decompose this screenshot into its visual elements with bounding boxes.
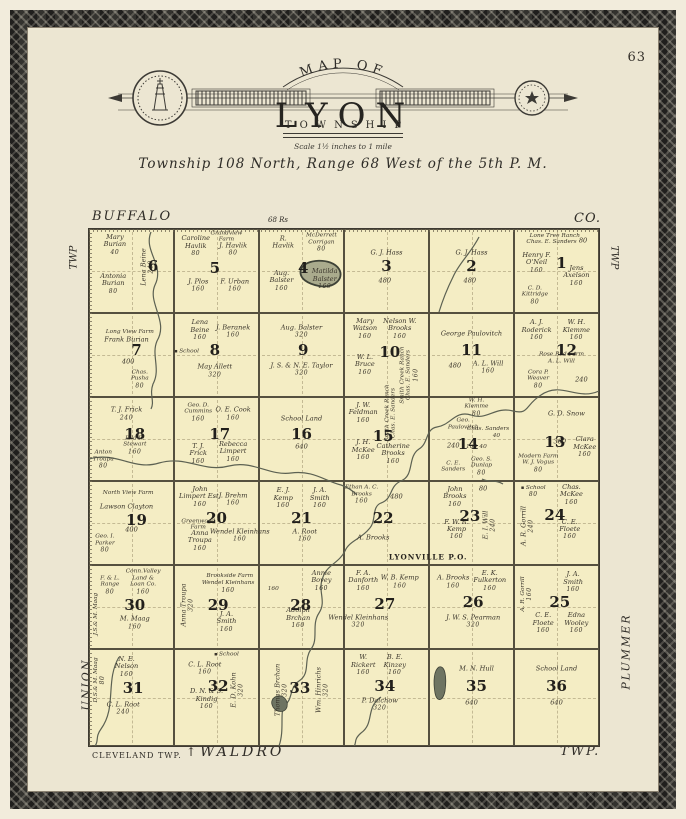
parcel-label: N. E.Nelson160 (115, 656, 138, 678)
parcel-label: 640 (295, 444, 308, 451)
parcel-label: 40 (493, 432, 500, 438)
parcel-label: LenaBeine160 (190, 319, 209, 341)
section-number: 36 (546, 677, 567, 695)
township-map: 6MaryBurian40AntoniaBurian80Lena Beine24… (88, 228, 600, 747)
parcel-label: G. J. Hass (371, 249, 403, 256)
section-number: 28 (290, 596, 311, 614)
section-cell-26: 26A. Brooks160E. K.Fulkerton160J. W. S. … (429, 565, 514, 649)
parcel-label: A. Root160 (293, 529, 318, 544)
parcel-label: JensAxelson160 (563, 265, 589, 287)
parcel-label: J. Havlik80 (219, 242, 247, 257)
section-number: 33 (289, 679, 310, 697)
section-cell-25: 25A. R. Gorrill160J. A.Smith160C. E.Floe… (514, 565, 599, 649)
parcel-label: JohnLimpert Est.160 (179, 486, 221, 508)
parcel-label: G. J. Hass (456, 249, 488, 256)
section-number: 21 (291, 509, 312, 527)
parcel-label: ClaraMcKee160 (573, 436, 596, 458)
section-number: 23 (459, 507, 480, 525)
section-cell-20: 20JohnLimpert Est.160J. Brehm160Greenwoo… (174, 481, 259, 565)
parcel-label: Wendel Kleinhans320 (328, 614, 388, 629)
parcel-label: G. D. Snow (548, 411, 585, 418)
parcel-label: Brookside Farm (206, 573, 253, 579)
parcel-label: EdnaWooley160 (564, 612, 588, 634)
section-cell-2: 2G. J. Hass480 (429, 229, 514, 313)
parcel-label: M. N. Hull (459, 665, 494, 672)
parcel-label: JohnBrooks160 (443, 486, 466, 508)
parcel-label: 160 (268, 586, 279, 592)
parcel-label: J. W. S. Pearman320 (446, 614, 500, 629)
parcel-label: J. H.McKee160 (352, 439, 375, 461)
section-number: 16 (291, 425, 312, 443)
parcel-label: D.S.& M. Maag80 (93, 658, 107, 703)
section-cell-14: 14W. H.Klemme80Geo.PaulovitchChas. Sande… (429, 397, 514, 481)
section-number: 29 (208, 596, 229, 614)
section-cell-28: 28160AnnieBovey160AdolphBrchan160 (259, 565, 344, 649)
parcel-label: Lawson Clayton (100, 503, 153, 510)
section-number: 13 (544, 433, 565, 451)
section-cell-7: 7Long View FarmFrank Burian400Chas.Pusha… (89, 313, 174, 397)
parcel-label: W. H.Klemme160 (563, 319, 590, 341)
parcel-label: Geo. D.Cummins160 (184, 402, 212, 423)
parcel-label: 480 (464, 277, 477, 284)
section-cell-21: 21E. J.Kemp160J. A.Smith160A. Root160 (259, 481, 344, 565)
survey-ticks-top (89, 229, 599, 232)
parcel-label: Frank Burian (104, 337, 149, 344)
section-cell-17: 17Geo. D.Cummins160O. E. Cook160T. J.Fri… (174, 397, 259, 481)
parcel-label: P. Dalchow320 (362, 698, 398, 713)
parcel-label: C. E.Sanders (441, 460, 465, 473)
section-cell-3: 3G. J. Hass480 (344, 229, 429, 313)
parcel-label: B. E.Kinzey160 (384, 654, 406, 676)
parcel-label: 80 (579, 237, 587, 244)
parcel-label: F. A.Danforth160 (348, 570, 378, 592)
section-cell-36: 36School Land640 (514, 649, 599, 746)
parcel-label: O. E. Cook160 (215, 407, 250, 422)
section-cell-24: 24School80Chas.McKee160A. R. Gorrill240C… (514, 481, 599, 565)
parcel-label: Henry F.O'Neil160 (522, 252, 551, 274)
parcel-label: Aug.Balster160 (270, 270, 294, 292)
section-cell-4: 4R.HavlikMcDerrettCorrigan80Aug.Balster1… (259, 229, 344, 313)
parcel-label: E. K.Fulkerton160 (473, 570, 506, 592)
parcel-label: E. D. Kohn320 (231, 672, 246, 707)
section-number: 27 (374, 595, 395, 613)
parcel-label: A. R. Gorrill160 (520, 576, 534, 611)
parcel-label: J. Plos160 (188, 278, 208, 293)
section-number: 10 (379, 343, 400, 361)
scale-note: Scale 1½ inches to 1 mile (0, 142, 686, 151)
parcel-label: J. W.Feldman160 (349, 402, 378, 424)
parcel-label: CatherineBrooks160 (377, 443, 410, 465)
parcel-label: T. J. Frick240 (111, 407, 142, 422)
parcel-label: Anna Troupa320 (181, 584, 196, 627)
section-number: 15 (373, 427, 394, 445)
parcel-label: C. L. Root160 (188, 661, 221, 676)
parcel-label: School Land (281, 416, 322, 423)
neighbor-label-plummer: PLUMMER (620, 613, 633, 689)
parcel-label: A. Brooks160 (437, 575, 469, 590)
parcel-label: May Allett320 (197, 364, 232, 379)
section-number: 25 (549, 593, 570, 611)
content-layer: 63 (0, 0, 686, 819)
plat-map-page: 63 (0, 0, 686, 819)
parcel-label: School Land (536, 665, 577, 672)
section-cell-1: 1Lone Tree RanchChas. E. Sanders80Henry … (514, 229, 599, 313)
parcel-label: 480 (449, 363, 462, 370)
parcel-label: C. E.Floete160 (533, 612, 554, 634)
parcel-label: Thomas Brchan320 (274, 664, 289, 716)
left-medallion-icon (133, 71, 187, 125)
parcel-label: A. J.Roderick160 (522, 319, 552, 341)
section-number: 1 (556, 254, 566, 272)
neighbor-label-twp-left: TWP (68, 246, 79, 270)
parcel-label: AntoniaBurian80 (100, 273, 126, 295)
parcel-label: M. Maag160 (120, 616, 150, 631)
section-number: 18 (124, 425, 145, 443)
parcel-label: School (214, 651, 239, 658)
north-arrow-icon: ↑ (186, 745, 196, 759)
parcel-label: 80 (479, 485, 487, 492)
parcel-label: MatildaBalster160 (312, 268, 338, 290)
section-cell-16: 16School Land640 (259, 397, 344, 481)
parcel-label: T. J.Frick160 (189, 443, 207, 465)
parcel-label: Modern FarmW. J. Vogus80 (518, 453, 558, 474)
parcel-label: W. B. Kemp160 (381, 575, 419, 590)
section-number: 5 (210, 259, 220, 277)
parcel-label: J. Brehm160 (219, 492, 248, 507)
parcel-label: MaryBurian40 (104, 234, 127, 256)
parcel-label: Ethan A. C.Brooks160 (345, 485, 378, 506)
neighbor-label-twp-right: TWP (608, 246, 619, 270)
section-number: 6 (148, 257, 158, 275)
parcel-label: Cora P.Weaver80 (527, 369, 549, 390)
parcel-label: Wendel Kleinhans160 (210, 529, 270, 544)
section-cell-15: 15J. W.Feldman160Smith Creek RanchChas. … (344, 397, 429, 481)
section-number: 20 (206, 509, 227, 527)
parcel-label: Chas. E. Sanders (526, 239, 576, 245)
township-range-line: Township 108 North, Range 68 West of the… (0, 156, 686, 172)
section-cell-27: 27F. A.Danforth160W. B. Kemp160Wendel Kl… (344, 565, 429, 649)
section-cell-29: 29Anna Troupa320Brookside FarmWendel Kle… (174, 565, 259, 649)
parcel-label: A. Brooks (357, 534, 389, 541)
section-number: 32 (208, 677, 229, 695)
section-number: 11 (461, 341, 482, 359)
section-cell-6: 6MaryBurian40AntoniaBurian80Lena Beine24… (89, 229, 174, 313)
parcel-label: 40 (479, 444, 486, 450)
section-number: 4 (298, 259, 308, 277)
section-number: 17 (209, 425, 230, 443)
parcel-label: E. J.Kemp160 (274, 487, 293, 509)
parcel-label: Long View Farm (106, 329, 154, 335)
section-cell-32: 32SchoolC. L. Root160D. N. & S.Kindig160… (174, 649, 259, 746)
parcel-label: McDerrettCorrigan80 (306, 233, 337, 254)
parcel-label: Lone Tree Ranch (530, 232, 580, 238)
township-subtitle: TOWNSHIP (0, 120, 686, 131)
range-mark: 68 Rs (268, 216, 288, 224)
parcel-label: Nelson W.Brooks160 (383, 318, 416, 340)
section-grid: 6MaryBurian40AntoniaBurian80Lena Beine24… (89, 229, 599, 746)
parcel-label: Geo. S.Dunlap80 (471, 457, 492, 478)
parcel-label: 640 (550, 700, 563, 707)
parcel-label: 480 (379, 277, 392, 284)
parcel-label: Wendel Kleinhans160 (202, 580, 255, 594)
parcel-label: 640 (465, 700, 478, 707)
neighbor-label-co: CO. (574, 211, 601, 226)
map-header: MAP OF LYON TOWNSHIP Scale 1½ inches to … (0, 54, 686, 172)
section-cell-35: 35M. N. Hull640 (429, 649, 514, 746)
section-number: 30 (124, 596, 145, 614)
section-cell-5: 5CarolineHavlik80GrandviewFarmJ. Havlik8… (174, 229, 259, 313)
parcel-label: Geo. I.Parker80 (95, 534, 115, 555)
left-spear-tip (108, 94, 122, 102)
section-number: 14 (458, 435, 479, 453)
section-cell-18: 18T. J. Frick240Ella R.Stewart160AntonTr… (89, 397, 174, 481)
parcel-label: Chas.McKee160 (560, 484, 583, 506)
section-number: 7 (131, 341, 141, 359)
parcel-label: A. L. Will160 (473, 361, 504, 376)
section-cell-19: 19North View FarmLawson Clayton400Geo. I… (89, 481, 174, 565)
section-cell-8: 8LenaBeine160J. Beranek160SchoolMay Alle… (174, 313, 259, 397)
right-spear-tip (564, 94, 578, 102)
section-number: 2 (466, 257, 476, 275)
parcel-label: E. I. Will240 (482, 510, 497, 539)
neighbor-label-buffalo: BUFFALO (92, 209, 172, 224)
section-number: 26 (463, 593, 484, 611)
section-cell-30: 30F. & L.Range80Conn.ValleyLand &Loan Co… (89, 565, 174, 649)
parcel-label: AntonTroupa80 (93, 450, 114, 471)
parcel-label: School80 (521, 485, 546, 499)
parcel-label: W. L.Bruce160 (355, 354, 375, 376)
parcel-label: CarolineHavlik80 (182, 235, 210, 257)
section-number: 35 (466, 677, 487, 695)
section-cell-34: 34W.Rickert160B. E.Kinzey160P. Dalchow32… (344, 649, 429, 746)
parcel-label: AnnieBovey160 (311, 570, 331, 592)
section-number: 22 (373, 509, 394, 527)
section-number: 34 (374, 677, 395, 695)
parcel-label: George Paulovitch (441, 330, 502, 337)
parcel-label: W. H.Klemme80 (464, 397, 488, 418)
parcel-label: R.Havlik (272, 236, 294, 251)
parcel-label: J.S.& M. Maag (93, 592, 99, 635)
neighbor-label-cleveland-twp: CLEVELAND TWP. (92, 751, 182, 760)
parcel-label: J. A.Smith160 (563, 571, 583, 593)
parcel-label: Chas.Pusha80 (131, 369, 149, 390)
parcel-label: J. Beranek160 (216, 324, 250, 339)
parcel-label: AnnaTroupa160 (188, 530, 212, 552)
parcel-label: W.Rickert160 (351, 654, 375, 676)
section-number: 9 (298, 341, 308, 359)
section-number: 8 (210, 341, 220, 359)
parcel-label: School (174, 348, 199, 355)
parcel-label: Conn.ValleyLand &Loan Co.160 (126, 569, 161, 596)
section-cell-11: 11George Paulovitch480A. L. Will160 (429, 313, 514, 397)
parcel-label: A. R. Gorrill240 (521, 506, 536, 546)
parcel-label: Aug. Balster320 (281, 324, 322, 339)
section-number: 12 (556, 341, 577, 359)
section-cell-33: 33Thomas Brchan320Wm. Hinrichs320 (259, 649, 344, 746)
parcel-label: Chas. Sanders (467, 426, 509, 432)
section-cell-13: 13G. D. Snow360ClaraMcKee160Modern FarmW… (514, 397, 599, 481)
parcel-label: North View Farm (103, 490, 154, 496)
parcel-label: C. L. Root240 (107, 701, 140, 716)
parcel-label: J. A.Smith160 (310, 487, 330, 509)
place-label: LYONVILLE P.O. (389, 553, 468, 562)
parcel-label: 240 (575, 376, 588, 383)
section-cell-9: 9Aug. Balster320J. S. & N. E. Taylor320 (259, 313, 344, 397)
section-cell-31: 31D.S.& M. Maag80N. E.Nelson160C. L. Roo… (89, 649, 174, 746)
map-of-arc: MAP OF (298, 57, 389, 81)
parcel-label: F. Urban160 (220, 278, 249, 293)
parcel-label: J. S. & N. E. Taylor320 (270, 362, 332, 377)
survey-ticks-left (89, 229, 92, 746)
parcel-label: F. & L.Range80 (100, 575, 120, 596)
parcel-label: Wm. Hinrichs320 (316, 667, 331, 713)
section-number: 19 (126, 511, 147, 529)
parcel-label: RebeccaLimpert160 (219, 441, 247, 463)
section-cell-12: 12A. J.Roderick160W. H.Klemme160Rose Bud… (514, 313, 599, 397)
section-number: 31 (123, 679, 144, 697)
parcel-label: 480 (390, 493, 403, 500)
section-number: 3 (381, 257, 391, 275)
right-medallion-icon (515, 81, 549, 115)
parcel-label: C. D.Kittridge80 (522, 285, 548, 306)
parcel-label: Smith Creek RanchChas. E. Sanders160 (399, 346, 420, 403)
section-number: 24 (544, 506, 565, 524)
parcel-label: MaryWatson160 (353, 318, 377, 340)
